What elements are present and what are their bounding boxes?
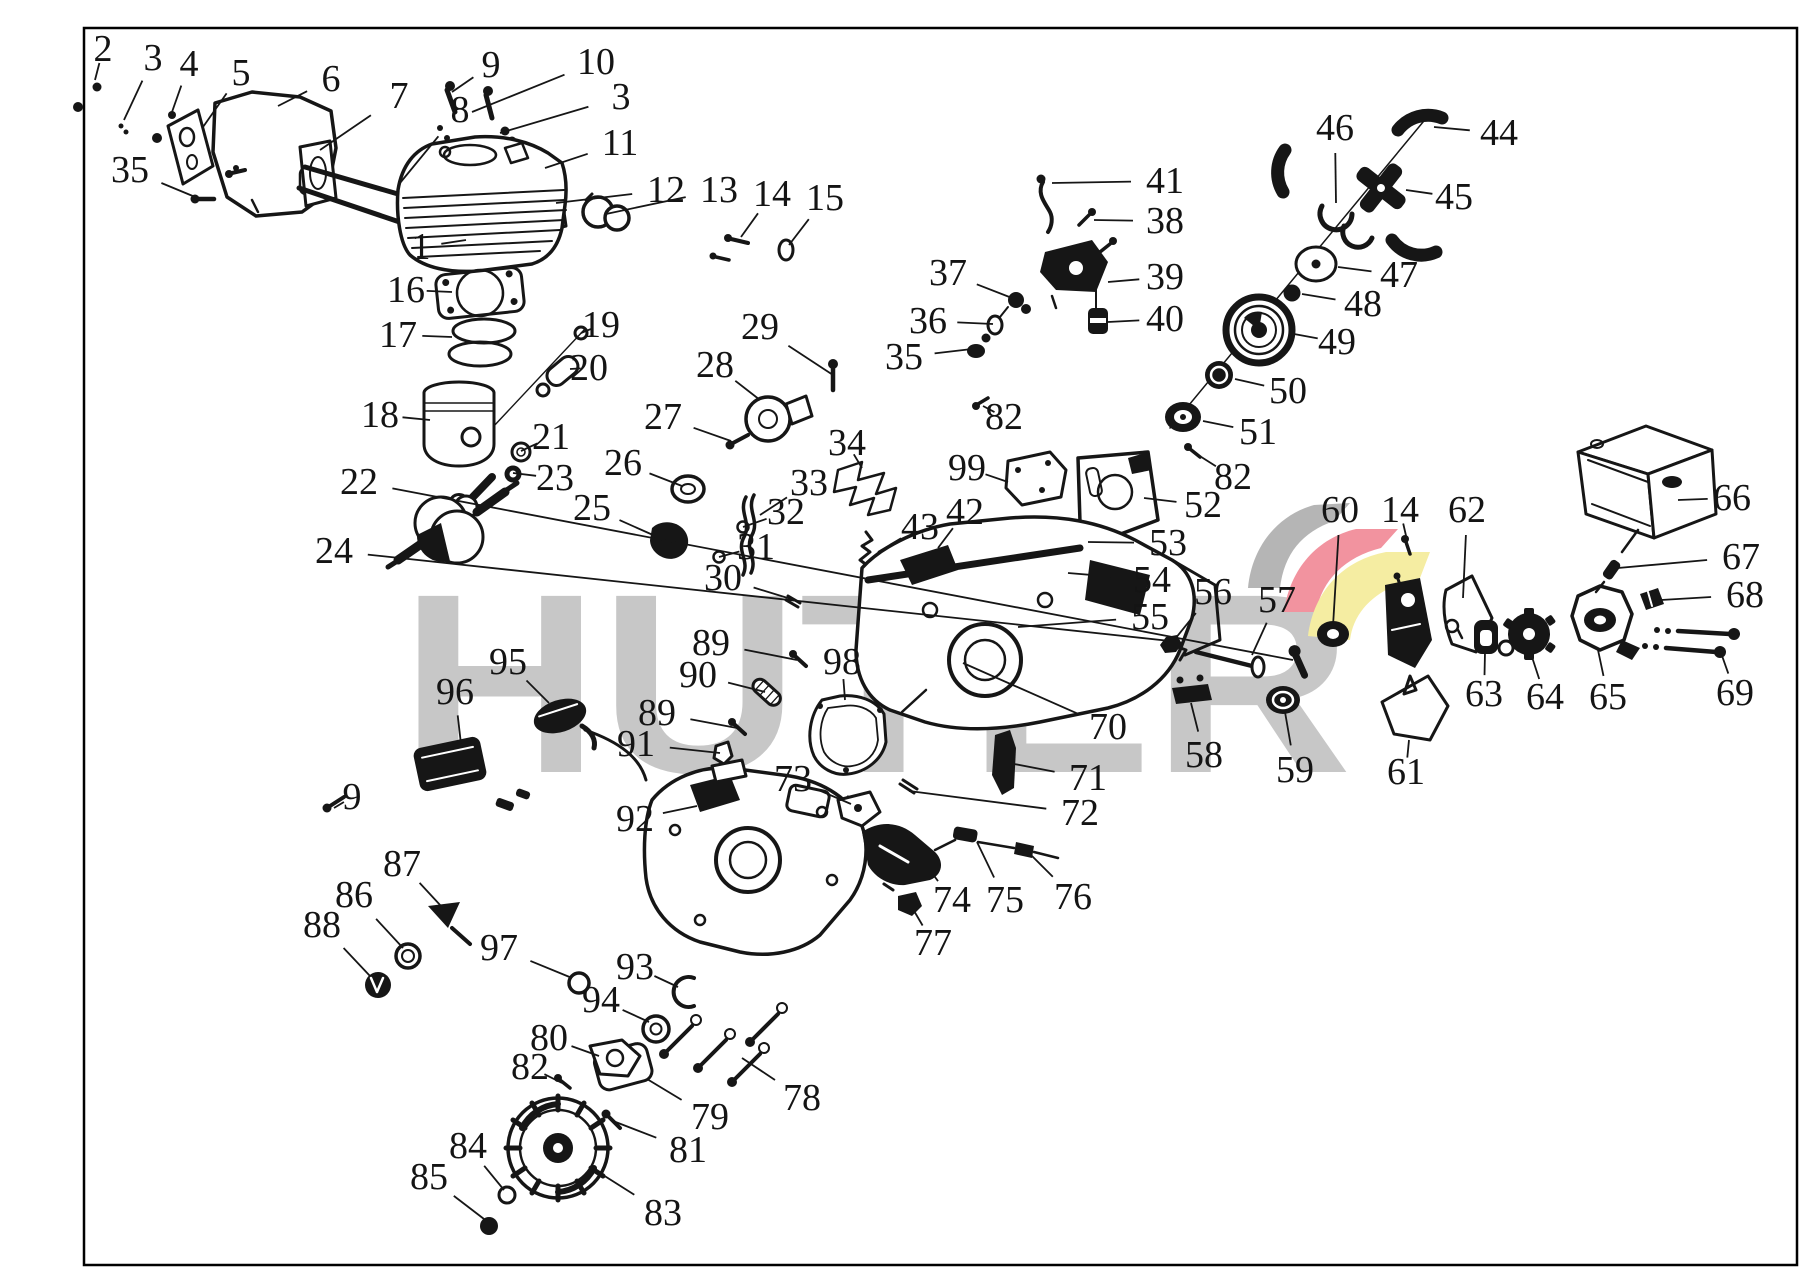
part-number-78: 78: [783, 1077, 821, 1119]
part-number-15: 15: [806, 177, 844, 219]
part-number-87: 87: [383, 843, 421, 885]
leader-line-28: [735, 381, 760, 400]
part-number-25: 25: [573, 487, 611, 529]
leader-line-41: [1052, 182, 1131, 183]
part-number-7: 7: [390, 75, 409, 117]
part-number-34: 34: [828, 422, 866, 464]
part-number-29: 29: [741, 306, 779, 348]
leader-line-51: [1203, 421, 1233, 427]
part-number-88: 88: [303, 904, 341, 946]
part-number-90: 90: [679, 654, 717, 696]
part-number-4: 4: [180, 43, 199, 85]
leader-line-14: [741, 213, 758, 237]
part-number-39: 39: [1146, 256, 1184, 298]
worm-washer: [643, 1016, 669, 1042]
part-number-64: 64: [1526, 676, 1564, 718]
leader-line-27: [694, 428, 731, 441]
part-number-41: 41: [1146, 160, 1184, 202]
part-number-35: 35: [111, 149, 149, 191]
leader-line-63: [1485, 652, 1486, 675]
part-number-51: 51: [1239, 411, 1277, 453]
part-number-48: 48: [1344, 283, 1382, 325]
intake-bolts: [710, 234, 749, 260]
part-number-83: 83: [644, 1192, 682, 1234]
part-number-44: 44: [1480, 112, 1518, 154]
leader-line-75: [977, 842, 994, 878]
piston: [424, 382, 494, 466]
leader-line-53: [1088, 542, 1134, 543]
part-number-37: 37: [929, 252, 967, 294]
leader-line-29: [788, 346, 833, 375]
part-number-81: 81: [669, 1129, 707, 1171]
leader-line-3: [124, 81, 142, 120]
clutch-assembly-65: [1572, 586, 1640, 660]
part-number-5: 5: [232, 52, 251, 94]
part-number-40: 40: [1146, 298, 1184, 340]
part-number-85: 85: [410, 1156, 448, 1198]
sprocket-64: [1499, 608, 1556, 660]
part-number-58: 58: [1185, 734, 1223, 776]
part-number-69: 69: [1716, 672, 1754, 714]
part-number-75: 75: [986, 879, 1024, 921]
leader-line-65: [1598, 650, 1604, 676]
part-number-23: 23: [536, 457, 574, 499]
part-number-70: 70: [1089, 706, 1127, 748]
leader-line-87: [420, 883, 441, 906]
leader-line-93: [654, 976, 678, 987]
part-number-17: 17: [379, 314, 417, 356]
part-number-91: 91: [617, 723, 655, 765]
throttle-rod: [1037, 175, 1052, 233]
part-number-45: 45: [1435, 176, 1473, 218]
part-number-98: 98: [823, 641, 861, 683]
part-number-3: 3: [144, 37, 163, 79]
part-number-35: 35: [885, 336, 923, 378]
part-number-10: 10: [577, 41, 615, 83]
handle-bracket: [884, 884, 922, 916]
leader-line-68: [1661, 597, 1711, 600]
part-number-16: 16: [387, 269, 425, 311]
carb-bolt: [726, 435, 749, 450]
worm-clip: [674, 977, 694, 1007]
part-number-56: 56: [1194, 571, 1232, 613]
leader-line-94: [623, 1010, 649, 1022]
part-number-77: 77: [914, 922, 952, 964]
leader-line-50: [1235, 379, 1264, 386]
part-number-65: 65: [1589, 676, 1627, 718]
flywheel: [506, 1096, 610, 1200]
needle-bearing: [512, 443, 530, 461]
part-number-57: 57: [1258, 579, 1296, 621]
part-number-19: 19: [582, 304, 620, 346]
leader-line-44: [1434, 127, 1470, 130]
clamp-68: [1640, 588, 1664, 610]
part-number-18: 18: [361, 394, 399, 436]
part-number-76: 76: [1054, 876, 1092, 918]
leader-line-39: [1108, 279, 1139, 282]
fuel-filter: [1596, 530, 1638, 592]
part-number-21: 21: [532, 416, 570, 458]
part-number-42: 42: [946, 491, 984, 533]
part-number-66: 66: [1713, 477, 1751, 519]
leader-line-15: [789, 219, 809, 245]
cylinder-base-gasket: [435, 266, 525, 321]
grommet: [672, 476, 704, 502]
part-number-52: 52: [1184, 484, 1222, 526]
part-number-55: 55: [1131, 596, 1169, 638]
part-number-72: 72: [1061, 792, 1099, 834]
part-number-60: 60: [1321, 489, 1359, 531]
leader-line-16: [427, 291, 452, 292]
oil-seal-63: [1474, 620, 1498, 654]
leader-line-45: [1406, 190, 1432, 194]
carb-flange: [746, 396, 812, 441]
part-number-3: 3: [612, 76, 631, 118]
leader-line-66: [1678, 499, 1708, 500]
part-number-95: 95: [489, 641, 527, 683]
part-number-50: 50: [1269, 370, 1307, 412]
leader-line-84: [484, 1166, 504, 1190]
part-number-28: 28: [696, 344, 734, 386]
part-number-27: 27: [644, 396, 682, 438]
leader-line-67: [1618, 560, 1707, 568]
brake-lever: [862, 824, 941, 885]
part-number-68: 68: [1726, 574, 1764, 616]
part-number-53: 53: [1149, 522, 1187, 564]
leader-line-99: [986, 474, 1009, 482]
guide-bracket: [834, 462, 896, 515]
part-number-46: 46: [1316, 107, 1354, 149]
part-number-9: 9: [343, 776, 362, 818]
muffler-small-screws: [73, 83, 176, 144]
part-number-62: 62: [1448, 489, 1486, 531]
exploded-parts-drawing: HUTER: [0, 0, 1809, 1283]
brake-cable: [935, 826, 1058, 858]
leader-line-37: [977, 284, 1012, 298]
side-plate-61: [1382, 676, 1448, 740]
starter-pawl: [428, 902, 470, 944]
part-number-63: 63: [1465, 673, 1503, 715]
part-number-6: 6: [322, 58, 341, 100]
tank-bolts: [1642, 627, 1740, 658]
leader-line-83: [592, 1168, 634, 1195]
part-number-8: 8: [451, 89, 470, 131]
part-number-93: 93: [616, 946, 654, 988]
part-number-82: 82: [985, 396, 1023, 438]
chainsaw-parts-diagram: HUTER: [0, 0, 1809, 1283]
leader-line-35: [935, 349, 972, 353]
part-number-99: 99: [948, 447, 986, 489]
part-number-47: 47: [1380, 254, 1418, 296]
leader-line-3: [500, 107, 588, 133]
leader-line-79: [647, 1079, 682, 1100]
part-number-94: 94: [582, 979, 620, 1021]
part-number-96: 96: [436, 671, 474, 713]
part-number-54: 54: [1133, 559, 1171, 601]
part-number-24: 24: [315, 530, 353, 572]
part-number-73: 73: [774, 758, 812, 800]
part-number-20: 20: [570, 347, 608, 389]
part-number-38: 38: [1146, 200, 1184, 242]
part-number-49: 49: [1318, 321, 1356, 363]
leader-line-35: [161, 183, 200, 199]
leader-line-85: [454, 1196, 484, 1219]
part-number-67: 67: [1722, 536, 1760, 578]
oiler-plate: [1006, 452, 1066, 505]
leader-line-4: [172, 86, 181, 112]
part-number-2: 2: [94, 28, 113, 70]
part-number-9: 9: [482, 44, 501, 86]
oil-tank: [1578, 426, 1716, 538]
part-number-31: 31: [737, 526, 775, 568]
crankcase-gasket: [810, 696, 886, 775]
part-number-84: 84: [449, 1125, 487, 1167]
leader-line-38: [1094, 220, 1133, 221]
starter-drum: [1266, 686, 1300, 714]
part-number-14: 14: [1381, 489, 1419, 531]
leader-line-97: [530, 961, 572, 978]
washer-86: [396, 944, 420, 968]
part-number-1: 1: [412, 226, 431, 268]
leader-line-17: [422, 336, 452, 337]
leader-line-88: [344, 948, 370, 976]
part-number-26: 26: [604, 442, 642, 484]
leader-line-47: [1338, 267, 1372, 271]
part-number-74: 74: [933, 879, 971, 921]
part-number-43: 43: [901, 506, 939, 548]
part-number-14: 14: [753, 173, 791, 215]
choke-plunger: [1088, 290, 1108, 334]
part-number-97: 97: [480, 927, 518, 969]
breather-chain: [967, 292, 1031, 358]
part-number-11: 11: [602, 122, 639, 164]
part-number-59: 59: [1276, 749, 1314, 791]
part-number-61: 61: [1387, 751, 1425, 793]
leader-line-86: [376, 919, 403, 948]
part-number-22: 22: [340, 461, 378, 503]
leader-line-40: [1108, 320, 1139, 322]
part-number-13: 13: [700, 169, 738, 211]
leader-line-49: [1294, 334, 1318, 338]
leader-line-82: [1195, 453, 1216, 466]
leader-line-46: [1335, 153, 1336, 203]
piston-rings: [449, 319, 515, 366]
ball-85: [480, 1217, 498, 1235]
leader-line-48: [1302, 294, 1336, 300]
part-number-30: 30: [704, 557, 742, 599]
circlip-84: [499, 1187, 515, 1203]
part-number-82: 82: [511, 1046, 549, 1088]
part-number-92: 92: [616, 798, 654, 840]
